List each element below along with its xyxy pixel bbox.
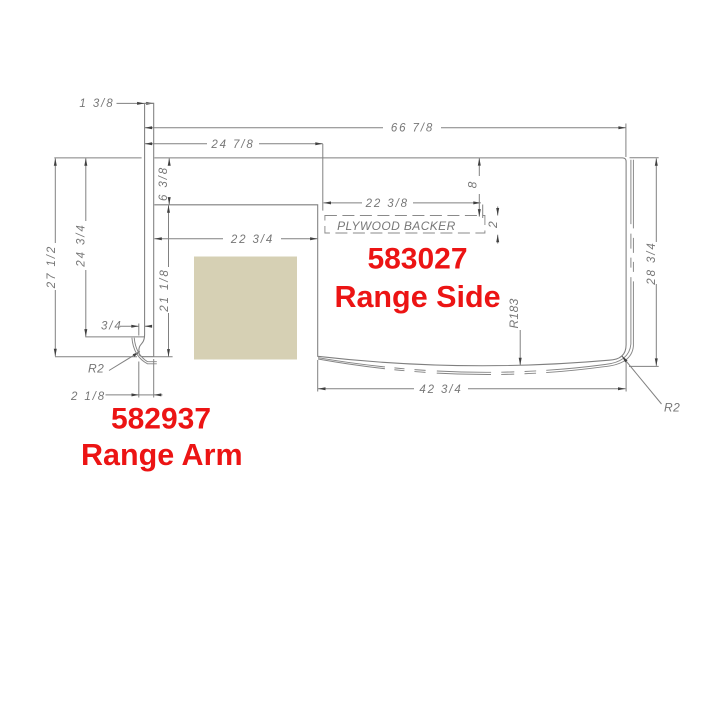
svg-text:28 3/4: 28 3/4 <box>646 241 658 285</box>
svg-text:R183: R183 <box>507 298 521 328</box>
svg-text:42 3/4: 42 3/4 <box>419 384 462 396</box>
svg-text:583027: 583027 <box>367 242 467 275</box>
svg-text:PLYWOOD BACKER: PLYWOOD BACKER <box>337 219 456 233</box>
svg-text:22 3/8: 22 3/8 <box>365 198 409 210</box>
svg-text:6 3/8: 6 3/8 <box>158 166 170 201</box>
svg-text:24 3/4: 24 3/4 <box>76 223 88 267</box>
svg-text:8: 8 <box>466 181 480 188</box>
svg-text:27 1/2: 27 1/2 <box>46 245 58 289</box>
svg-text:2 1/8: 2 1/8 <box>70 391 106 403</box>
svg-text:2: 2 <box>486 221 500 229</box>
svg-text:Range Side: Range Side <box>334 280 500 314</box>
svg-text:582937: 582937 <box>111 402 211 435</box>
svg-text:66 7/8: 66 7/8 <box>391 123 434 135</box>
svg-text:Range Arm: Range Arm <box>81 438 243 472</box>
svg-text:24 7/8: 24 7/8 <box>210 139 254 151</box>
svg-text:21 1/8: 21 1/8 <box>159 268 171 312</box>
svg-text:R2: R2 <box>664 401 680 415</box>
svg-text:22 3/4: 22 3/4 <box>230 234 274 246</box>
svg-text:3/4: 3/4 <box>101 321 123 333</box>
svg-text:1 3/8: 1 3/8 <box>79 98 114 110</box>
svg-text:R2: R2 <box>88 362 104 376</box>
